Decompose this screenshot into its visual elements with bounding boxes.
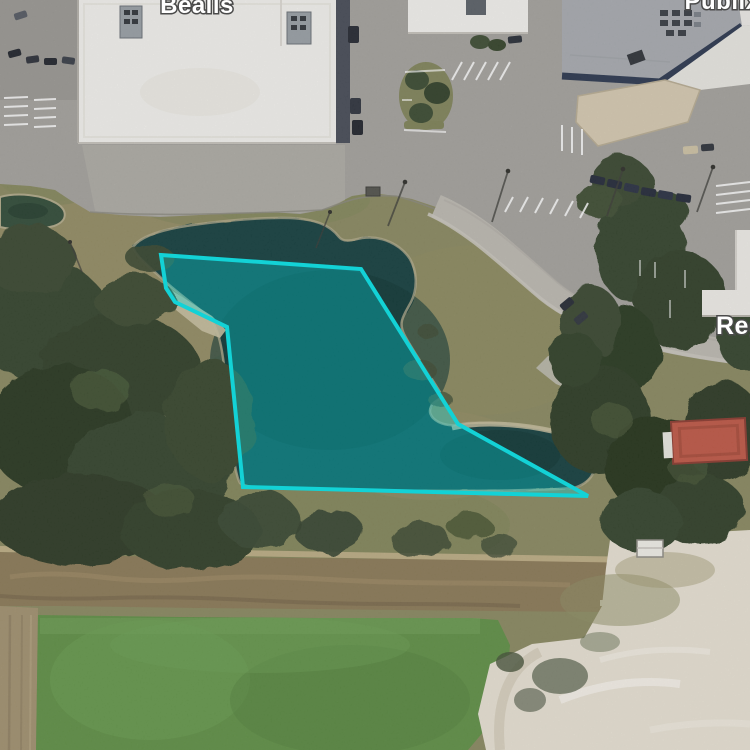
map-canvas[interactable]: Bealls Publix Reg (0, 0, 750, 750)
map-container[interactable]: Bealls Publix Reg (0, 0, 750, 750)
place-label-reg: Reg (716, 312, 750, 340)
place-label-publix: Publix (684, 0, 750, 15)
place-label-bealls: Bealls (160, 0, 234, 19)
